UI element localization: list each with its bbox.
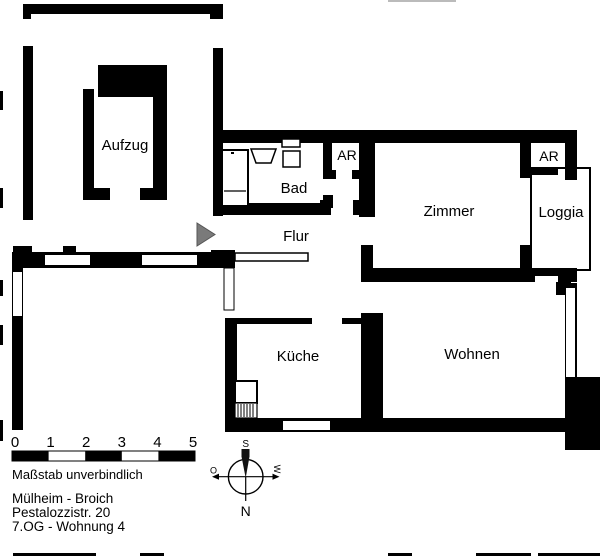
cutoff-line-top xyxy=(388,0,456,2)
room-label-kueche: Küche xyxy=(277,348,320,365)
floorplan-page: Aufzug Bad AR Zimmer AR Loggia Flur Küch… xyxy=(0,0,600,556)
room-label-wohnen: Wohnen xyxy=(444,346,500,363)
washbasin-icon xyxy=(251,149,276,163)
compass-label-o: O xyxy=(210,466,217,476)
room-label-ar-bad: AR xyxy=(337,147,356,163)
window-wohnen xyxy=(566,288,575,377)
scale-note: Maßstab unverbindlich xyxy=(12,467,143,482)
address-location: Mülheim - Broich xyxy=(12,491,113,506)
floor-plan: Aufzug Bad AR Zimmer AR Loggia Flur Küch… xyxy=(0,0,600,556)
window-kueche xyxy=(283,421,330,430)
entrance-door-leaf xyxy=(235,253,308,261)
room-label-bad: Bad xyxy=(281,180,308,197)
address-block: Mülheim - Broich Pestalozzistr. 20 7.OG … xyxy=(12,491,126,534)
compass-label-n: N xyxy=(241,503,251,519)
compass-label-w: W xyxy=(272,465,282,474)
sink-unit-icon xyxy=(235,381,257,403)
scale-tick-0: 0 xyxy=(11,434,19,451)
room-label-flur: Flur xyxy=(283,228,309,245)
compass-label-s: S xyxy=(242,439,249,450)
bathtub-icon xyxy=(222,150,248,206)
compass-needle-cap xyxy=(242,449,250,457)
toilet-bowl-icon xyxy=(283,151,300,167)
scale-tick-5: 5 xyxy=(189,434,197,451)
scale-tick-2: 2 xyxy=(82,434,90,451)
window-top-1 xyxy=(45,255,90,265)
bathtub-drain xyxy=(231,152,234,154)
address-unit: 7.OG - Wohnung 4 xyxy=(12,519,126,534)
address-street: Pestalozzistr. 20 xyxy=(12,505,110,520)
scale-tick-4: 4 xyxy=(153,434,161,451)
window-flur xyxy=(224,268,234,310)
loggia-door-opening xyxy=(535,276,558,282)
toilet-cistern-icon xyxy=(282,139,300,147)
room-label-aufzug: Aufzug xyxy=(102,137,149,154)
scale-tick-1: 1 xyxy=(46,434,54,451)
scale-tick-3: 3 xyxy=(118,434,126,451)
window-left xyxy=(13,272,22,316)
window-top-2 xyxy=(142,255,197,265)
room-label-ar-loggia: AR xyxy=(539,148,558,164)
room-label-loggia: Loggia xyxy=(538,204,584,221)
kitchen-fixtures xyxy=(235,381,257,418)
room-label-zimmer: Zimmer xyxy=(424,203,475,220)
window-zimmer-loggia xyxy=(521,178,530,245)
